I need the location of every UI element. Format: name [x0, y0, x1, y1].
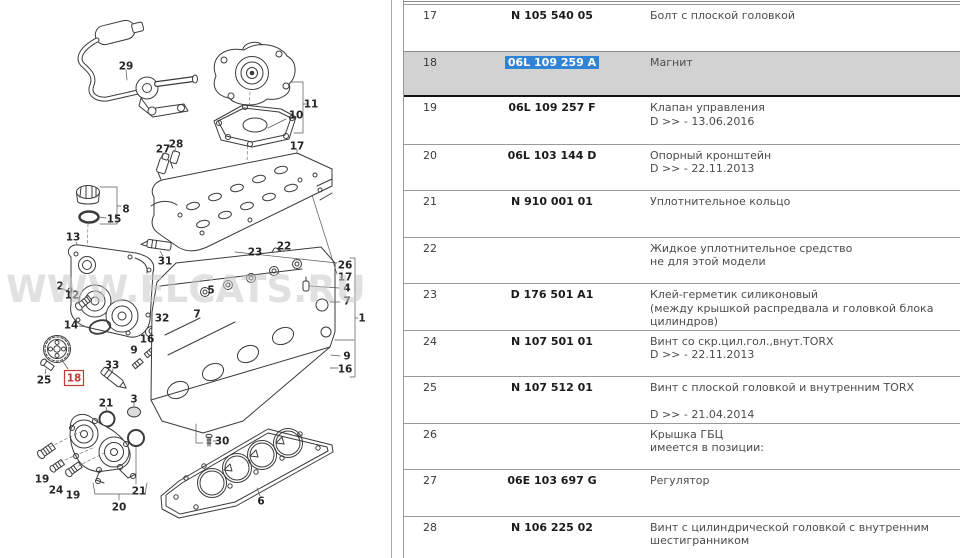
part-number[interactable]: 06L 103 144 D — [508, 149, 597, 162]
part-number-cell[interactable]: 06L 109 259 A — [454, 56, 650, 96]
diagram-callout-13[interactable]: 13 — [66, 232, 81, 244]
table-row[interactable]: 17N 105 540 05Болт с плоской головкой — [404, 4, 960, 51]
table-row[interactable]: 2006L 103 144 DОпорный кронштейнD >> - 2… — [404, 144, 960, 191]
diagram-callout-20[interactable]: 20 — [112, 502, 127, 514]
part-number-cell[interactable] — [454, 242, 650, 284]
diagram-callout-24[interactable]: 24 — [49, 485, 64, 497]
diagram-callout-15[interactable]: 15 — [107, 214, 122, 226]
diagram-callout-18[interactable]: 18 — [67, 373, 82, 385]
diagram-callout-26[interactable]: 26 — [338, 260, 353, 272]
diagram-callout-7[interactable]: 7 — [343, 296, 350, 308]
diagram-callout-28[interactable]: 28 — [169, 139, 184, 151]
diagram-callout-32[interactable]: 32 — [155, 313, 170, 325]
diagram-callout-19[interactable]: 19 — [35, 474, 50, 486]
parts-diagram-svg: 2911102728178151331232226174719162121425… — [0, 0, 392, 558]
table-row[interactable]: 25N 107 512 01Винт с плоской головкой и … — [404, 376, 960, 423]
diagram-callout-30[interactable]: 30 — [215, 436, 230, 448]
cam-adjuster-housing-drawing — [214, 45, 295, 105]
row-position-number: 24 — [404, 335, 454, 377]
row-position-number: 26 — [404, 428, 454, 470]
part-number[interactable]: N 107 501 01 — [511, 335, 593, 348]
part-description: Жидкое уплотнительное средствоне для это… — [650, 242, 960, 284]
part-number-cell[interactable] — [454, 428, 650, 470]
part-description: Регулятор — [650, 474, 960, 516]
row-position-number: 18 — [404, 56, 454, 96]
diagram-callout-17[interactable]: 17 — [290, 141, 305, 153]
table-row[interactable]: 1806L 109 259 AМагнит — [404, 51, 960, 98]
row-position-number: 17 — [404, 9, 454, 51]
table-row[interactable]: 24N 107 501 01Винт со скр.цил.гол.,внут.… — [404, 330, 960, 377]
part-number-cell[interactable]: D 176 501 A1 — [454, 288, 650, 330]
diagram-callout-6[interactable]: 6 — [257, 496, 264, 508]
part-number[interactable]: N 910 001 01 — [511, 195, 593, 208]
row-position-number: 28 — [404, 521, 454, 558]
diagram-callout-33[interactable]: 33 — [105, 360, 120, 372]
part-number-cell[interactable]: N 107 512 01 — [454, 381, 650, 423]
diagram-callout-3[interactable]: 3 — [130, 394, 137, 406]
row-position-number: 19 — [404, 101, 454, 144]
diagram-callout-7[interactable]: 7 — [193, 309, 200, 321]
diagram-callout-23[interactable]: 23 — [248, 247, 263, 259]
diagram-callout-16[interactable]: 16 — [140, 334, 155, 346]
diagram-callout-14[interactable]: 14 — [64, 320, 79, 332]
diagram-callout-9[interactable]: 9 — [343, 351, 350, 363]
part-description: Винт со скр.цил.гол.,внут.TORXD >> - 22.… — [650, 335, 960, 377]
table-row[interactable]: 28N 106 225 02Винт с цилиндрической голо… — [404, 516, 960, 558]
part-number[interactable]: D 176 501 A1 — [511, 288, 594, 301]
breather-valve-drawing — [93, 18, 136, 46]
part-number[interactable]: N 107 512 01 — [511, 381, 593, 394]
part-number[interactable]: 06L 109 257 F — [508, 101, 595, 114]
table-row[interactable]: 23D 176 501 A1Клей-герметик силиконовый(… — [404, 283, 960, 330]
part-description: Болт с плоской головкой — [650, 9, 960, 51]
diagram-callout-10[interactable]: 10 — [289, 110, 304, 122]
row-position-number: 23 — [404, 288, 454, 330]
part-number-cell[interactable]: 06L 109 257 F — [454, 101, 650, 144]
row-position-number: 22 — [404, 242, 454, 284]
parts-table: 17N 105 540 05Болт с плоской головкой180… — [403, 0, 960, 558]
part-description: Винт с плоской головкой и внутренним TOR… — [650, 381, 960, 423]
part-number-cell[interactable]: 06E 103 697 G — [454, 474, 650, 516]
parts-diagram-panel: 2911102728178151331232226174719162121425… — [0, 0, 392, 558]
diagram-callout-1[interactable]: 1 — [358, 313, 365, 325]
diagram-callout-25[interactable]: 25 — [37, 375, 52, 387]
part-description: Крышка ГБЦимеется в позиции: — [650, 428, 960, 470]
row-position-number: 21 — [404, 195, 454, 237]
diagram-callout-5[interactable]: 5 — [207, 285, 214, 297]
table-row[interactable]: 1906L 109 257 FКлапан управленияD >> - 1… — [404, 97, 960, 144]
diagram-callout-11[interactable]: 11 — [304, 99, 319, 111]
table-row[interactable]: 2706E 103 697 GРегулятор — [404, 469, 960, 516]
table-row[interactable]: 21N 910 001 01Уплотнительное кольцо — [404, 190, 960, 237]
diagram-callout-29[interactable]: 29 — [119, 61, 134, 73]
diagram-callout-16[interactable]: 16 — [338, 364, 353, 376]
diagram-callout-9[interactable]: 9 — [130, 345, 137, 357]
camshaft-cover-drawing — [152, 153, 332, 251]
diagram-callout-21[interactable]: 21 — [99, 398, 114, 410]
part-number[interactable]: N 106 225 02 — [511, 521, 593, 534]
part-description: Опорный кронштейнD >> - 22.11.2013 — [650, 149, 960, 191]
diagram-callout-4[interactable]: 4 — [343, 283, 350, 295]
part-number[interactable]: 06E 103 697 G — [507, 474, 596, 487]
part-description: Клапан управленияD >> - 13.06.2016 — [650, 101, 960, 144]
part-description: Магнит — [650, 56, 960, 96]
diagram-callout-22[interactable]: 22 — [277, 241, 292, 253]
row-position-number: 27 — [404, 474, 454, 516]
selected-part-number[interactable]: 06L 109 259 A — [505, 56, 599, 69]
diagram-callout-31[interactable]: 31 — [158, 256, 173, 268]
table-row[interactable]: 22Жидкое уплотнительное средствоне для э… — [404, 237, 960, 284]
row-position-number: 25 — [404, 381, 454, 423]
part-number-cell[interactable]: N 105 540 05 — [454, 9, 650, 51]
parts-catalog-window: 2911102728178151331232226174719162121425… — [0, 0, 960, 558]
part-number-cell[interactable]: N 107 501 01 — [454, 335, 650, 377]
part-number-cell[interactable]: 06L 103 144 D — [454, 149, 650, 191]
diagram-callout-21[interactable]: 21 — [132, 486, 147, 498]
part-description: Винт с цилиндрической головкой с внутрен… — [650, 521, 960, 558]
table-top-border — [404, 1, 960, 2]
table-row[interactable]: 26Крышка ГБЦимеется в позиции: — [404, 423, 960, 470]
diagram-callout-19[interactable]: 19 — [66, 490, 81, 502]
housing-gasket-drawing — [214, 105, 296, 147]
row-position-number: 20 — [404, 149, 454, 191]
diagram-callout-2[interactable]: 2 — [56, 281, 63, 293]
cylinder-head-drawing — [151, 247, 335, 433]
part-number-cell[interactable]: N 910 001 01 — [454, 195, 650, 237]
diagram-callout-12[interactable]: 12 — [65, 290, 80, 302]
part-description: Уплотнительное кольцо — [650, 195, 960, 237]
parts-table-body: 17N 105 540 05Болт с плоской головкой180… — [404, 4, 960, 558]
part-number[interactable]: N 105 540 05 — [511, 9, 593, 22]
part-number-cell[interactable]: N 106 225 02 — [454, 521, 650, 558]
part-description: Клей-герметик силиконовый(между крышкой … — [650, 288, 960, 330]
diagram-callout-8[interactable]: 8 — [122, 204, 129, 216]
